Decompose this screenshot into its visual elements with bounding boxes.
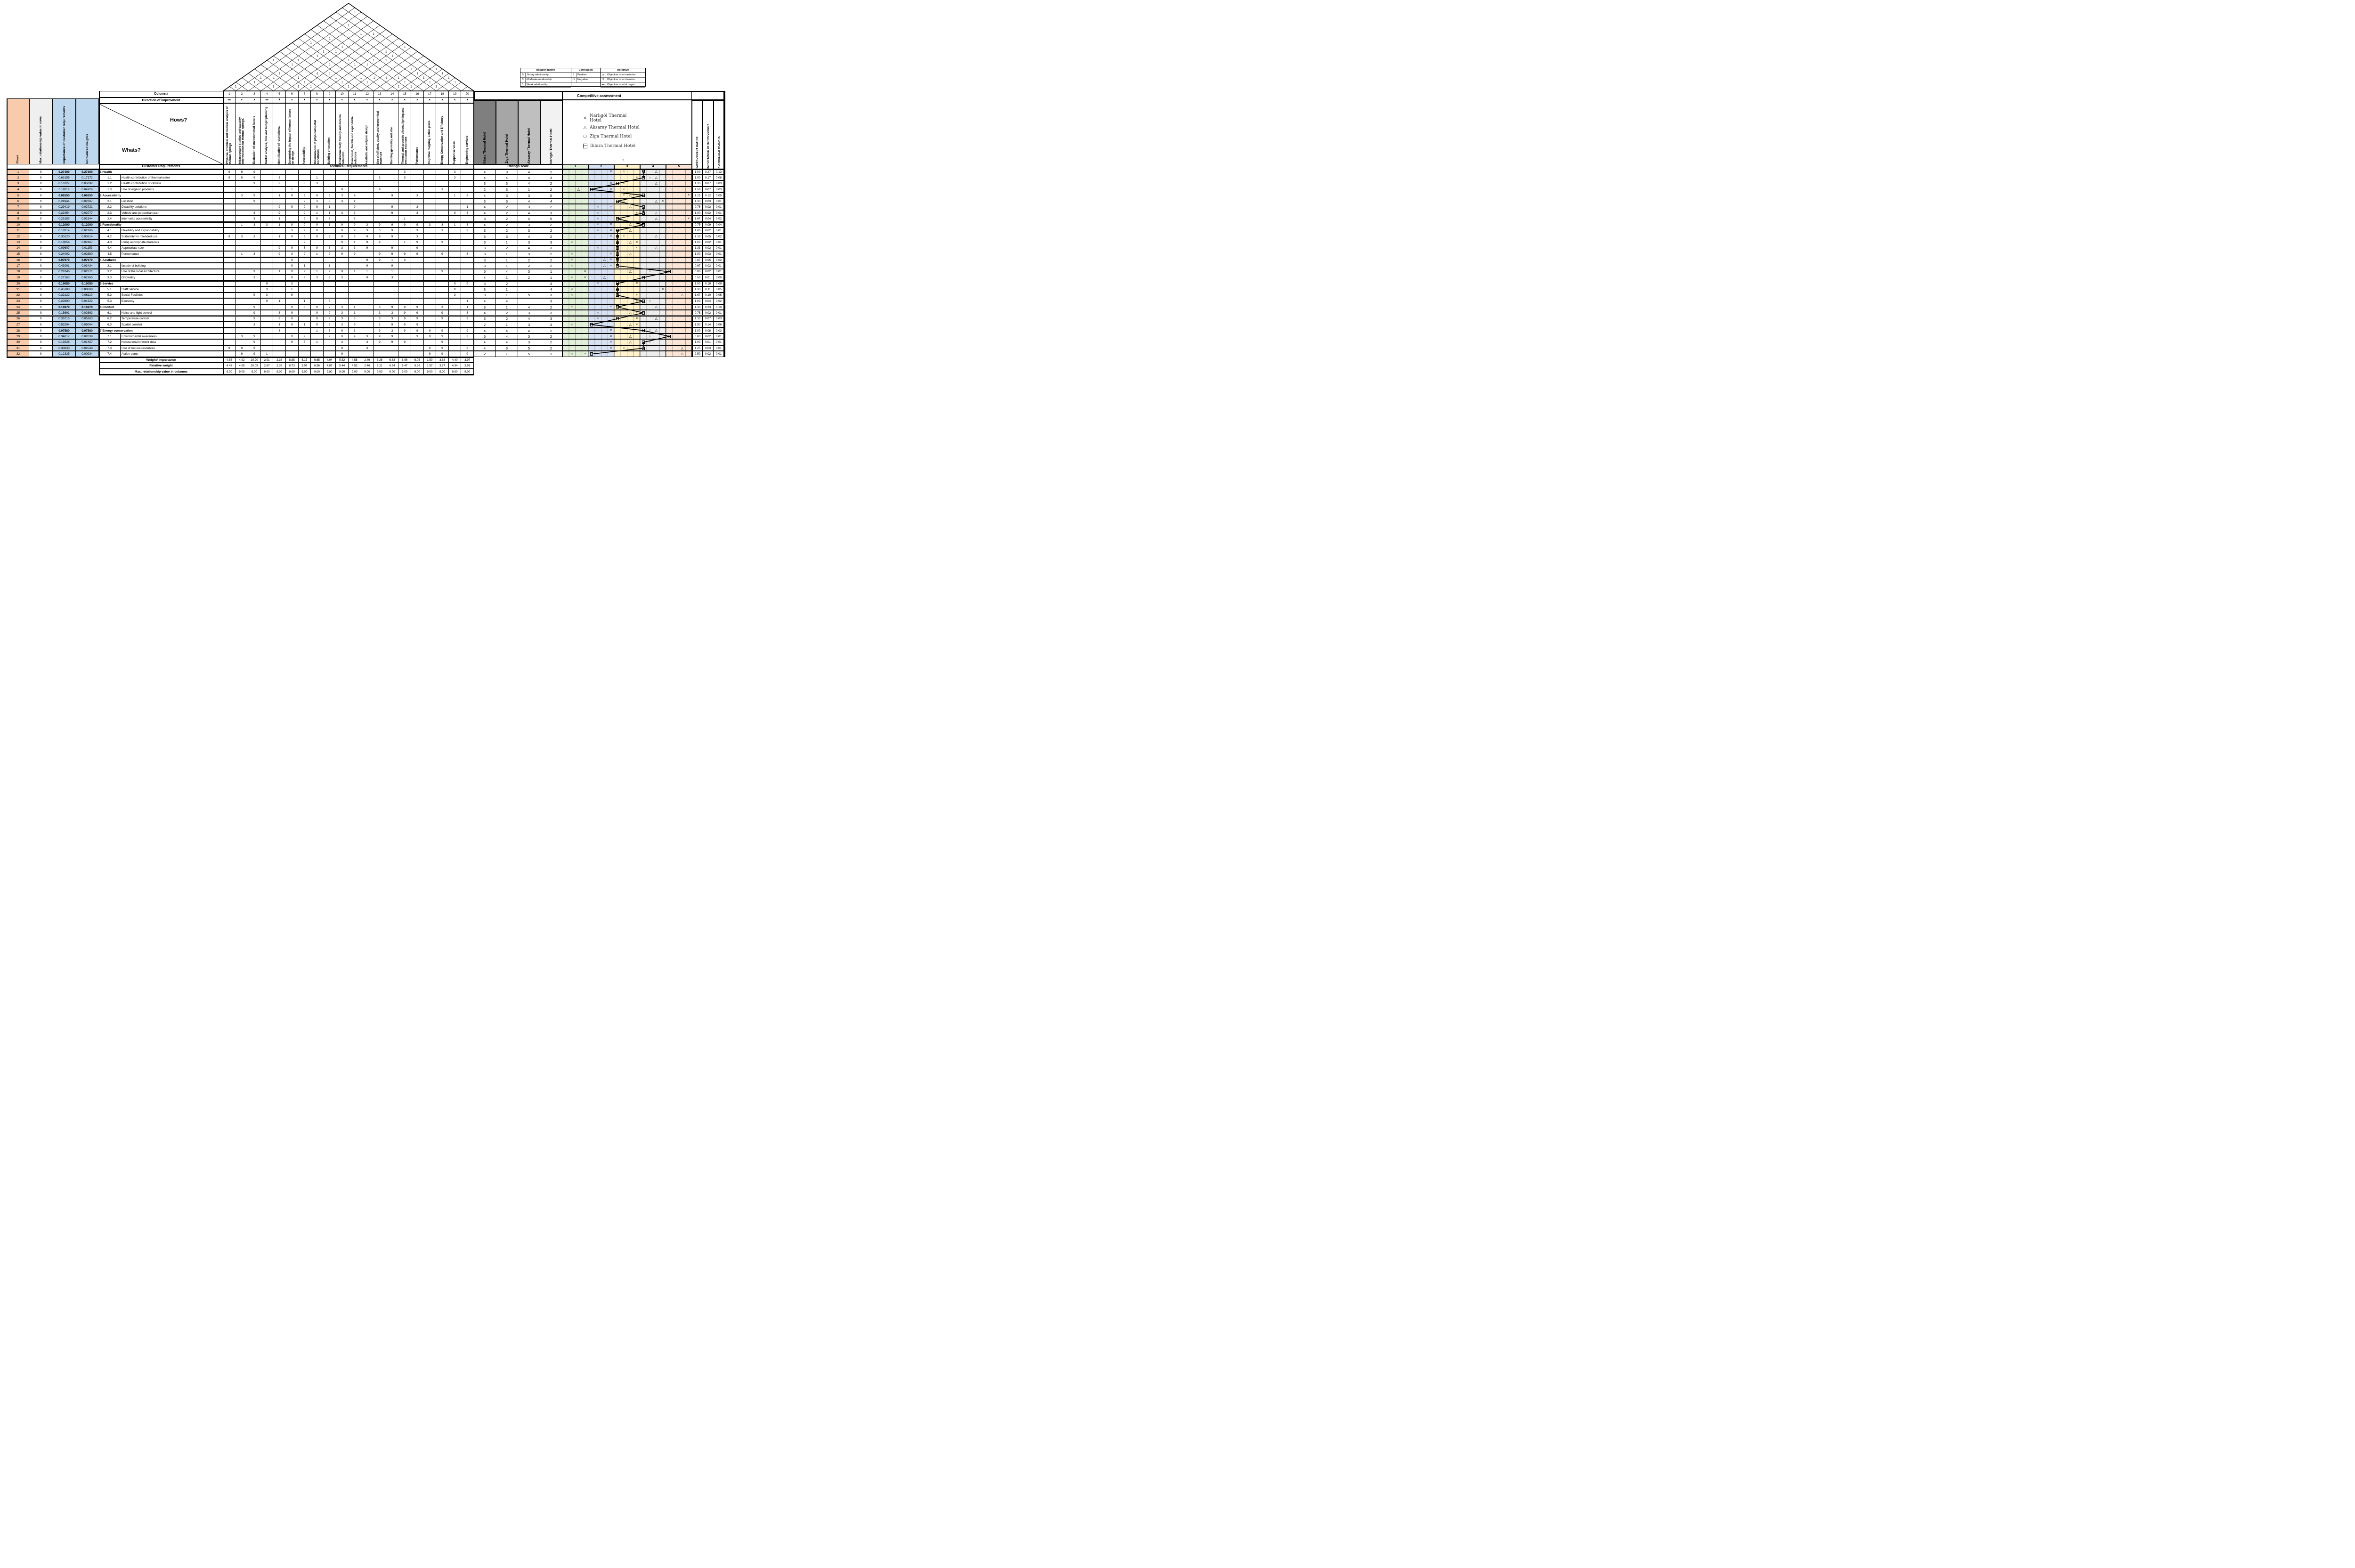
ihlara-mark [616,229,619,232]
ziga-mark: ○ [596,222,600,227]
aksaray-mark: △ [628,222,632,227]
narligol-mark: × [635,176,639,180]
aksaray-mark: △ [602,258,606,262]
frame-line [99,374,474,375]
ziga-mark: ○ [648,269,652,274]
narligol-mark: × [609,187,613,192]
ziga-mark: ○ [622,346,626,350]
narligol-mark: × [609,264,613,268]
aksaray-mark: △ [602,264,606,268]
ihlara-mark [642,170,645,173]
ziga-mark: ○ [570,352,574,356]
ihlara-mark [642,341,645,344]
narligol-mark: × [609,205,613,209]
aksaray-mark: △ [628,323,632,327]
ihlara-mark [616,282,619,285]
aksaray-mark: △ [680,352,684,356]
narligol-mark: × [583,269,587,274]
narligol-mark: × [609,346,613,350]
qfd-house-of-quality: 1111111111111111-1111-1-11111-1111111111… [0,0,725,380]
narligol-mark: × [635,293,639,297]
narligol-mark: × [609,340,613,344]
ziga-mark: ○ [596,211,600,215]
ziga-mark: ○ [570,305,574,309]
ihlara-mark [642,311,645,315]
ziga-mark: ○ [596,317,600,321]
ihlara-mark [616,217,619,220]
aksaray-mark: △ [654,211,658,215]
narligol-mark: × [635,246,639,250]
narligol-mark: × [609,234,613,238]
ziga-mark: ○ [622,187,626,192]
narligol-mark: × [609,170,613,174]
narligol-mark: × [609,228,613,233]
narligol-mark: × [635,240,639,244]
ihlara-mark [616,182,619,185]
narligol-mark: × [635,317,639,321]
ihlara-mark [616,235,619,238]
narligol-mark: × [609,252,613,256]
ihlara-mark [590,188,593,191]
aksaray-mark: △ [628,269,632,274]
aksaray-mark: △ [654,234,658,238]
ihlara-mark [616,264,619,268]
ziga-mark: ○ [596,246,600,250]
ihlara-mark [642,329,645,332]
ihlara-mark [642,300,645,303]
ziga-mark: ○ [622,234,626,238]
aksaray-mark: △ [680,293,684,297]
ziga-mark: ○ [648,328,652,333]
ihlara-mark [642,176,645,179]
aksaray-mark: △ [654,170,658,174]
aksaray-mark: △ [628,340,632,344]
ziga-mark: ○ [596,217,600,221]
ihlara-mark [642,205,645,209]
aksaray-mark: △ [628,252,632,256]
ziga-mark: ○ [570,276,574,280]
aksaray-mark: △ [654,328,658,333]
frame-line [724,91,725,357]
ihlara-mark [642,347,645,350]
narligol-mark: × [609,305,613,309]
ihlara-mark [616,246,619,250]
ziga-mark: ○ [622,170,626,174]
ihlara-mark [642,194,645,197]
ziga-mark: ○ [648,176,652,180]
ziga-mark: ○ [622,193,626,197]
narligol-mark: × [583,352,587,356]
ziga-mark: ○ [622,181,626,186]
narligol-mark: × [635,311,639,315]
narligol-mark: × [583,276,587,280]
narligol-mark: × [635,323,639,327]
ziga-mark: ○ [596,205,600,209]
narligol-mark: × [635,299,639,303]
ihlara-mark [616,200,619,203]
ihlara-mark [642,276,645,279]
ziga-mark: ○ [596,228,600,233]
ziga-mark: ○ [622,199,626,203]
narligol-mark: × [609,181,613,186]
ziga-mark: ○ [596,311,600,315]
ihlara-mark [616,252,619,256]
aksaray-mark: △ [654,305,658,309]
narligol-mark: × [635,281,639,285]
ihlara-mark [616,317,619,320]
ziga-mark: ○ [648,299,652,303]
ihlara-mark [668,270,671,273]
ziga-mark: ○ [570,264,574,268]
aksaray-mark: △ [602,276,606,280]
aksaray-mark: △ [654,246,658,250]
ziga-mark: ○ [570,323,574,327]
aksaray-mark: △ [680,346,684,350]
aksaray-mark: △ [654,317,658,321]
ihlara-mark [668,335,671,338]
aksaray-mark: △ [628,228,632,233]
ziga-mark: ○ [596,281,600,285]
ihlara-mark [642,223,645,227]
ihlara-mark [616,288,619,291]
ihlara-mark [642,211,645,215]
narligol-mark: × [687,217,690,221]
aksaray-mark: △ [628,334,632,339]
ihlara-mark [616,258,619,261]
aksaray-mark: △ [654,199,658,203]
aksaray-mark: △ [628,193,632,197]
ziga-mark: ○ [648,334,652,339]
aksaray-mark: △ [654,176,658,180]
narligol-mark: × [609,222,613,227]
ihlara-mark [590,323,593,326]
ihlara-mark [616,305,619,309]
aksaray-mark: △ [654,217,658,221]
narligol-mark: × [609,334,613,339]
aksaray-mark: △ [628,240,632,244]
ziga-mark: ○ [570,240,574,244]
ziga-mark: ○ [570,258,574,262]
aksaray-mark: △ [628,311,632,315]
ziga-mark: ○ [570,287,574,292]
aksaray-mark: △ [654,181,658,186]
ihlara-mark [590,352,593,356]
aksaray-mark: △ [628,205,632,209]
ihlara-mark [616,241,619,244]
narligol-mark: × [661,287,665,292]
narligol-mark: × [635,211,639,215]
ziga-mark: ○ [648,340,652,344]
narligol-mark: × [609,328,613,333]
ihlara-mark [616,293,619,297]
ziga-mark: ○ [570,293,574,297]
narligol-mark: × [687,193,690,197]
narligol-mark: × [609,258,613,262]
narligol-mark: × [661,199,665,203]
ziga-mark: ○ [570,252,574,256]
aksaray-mark: △ [577,187,580,192]
